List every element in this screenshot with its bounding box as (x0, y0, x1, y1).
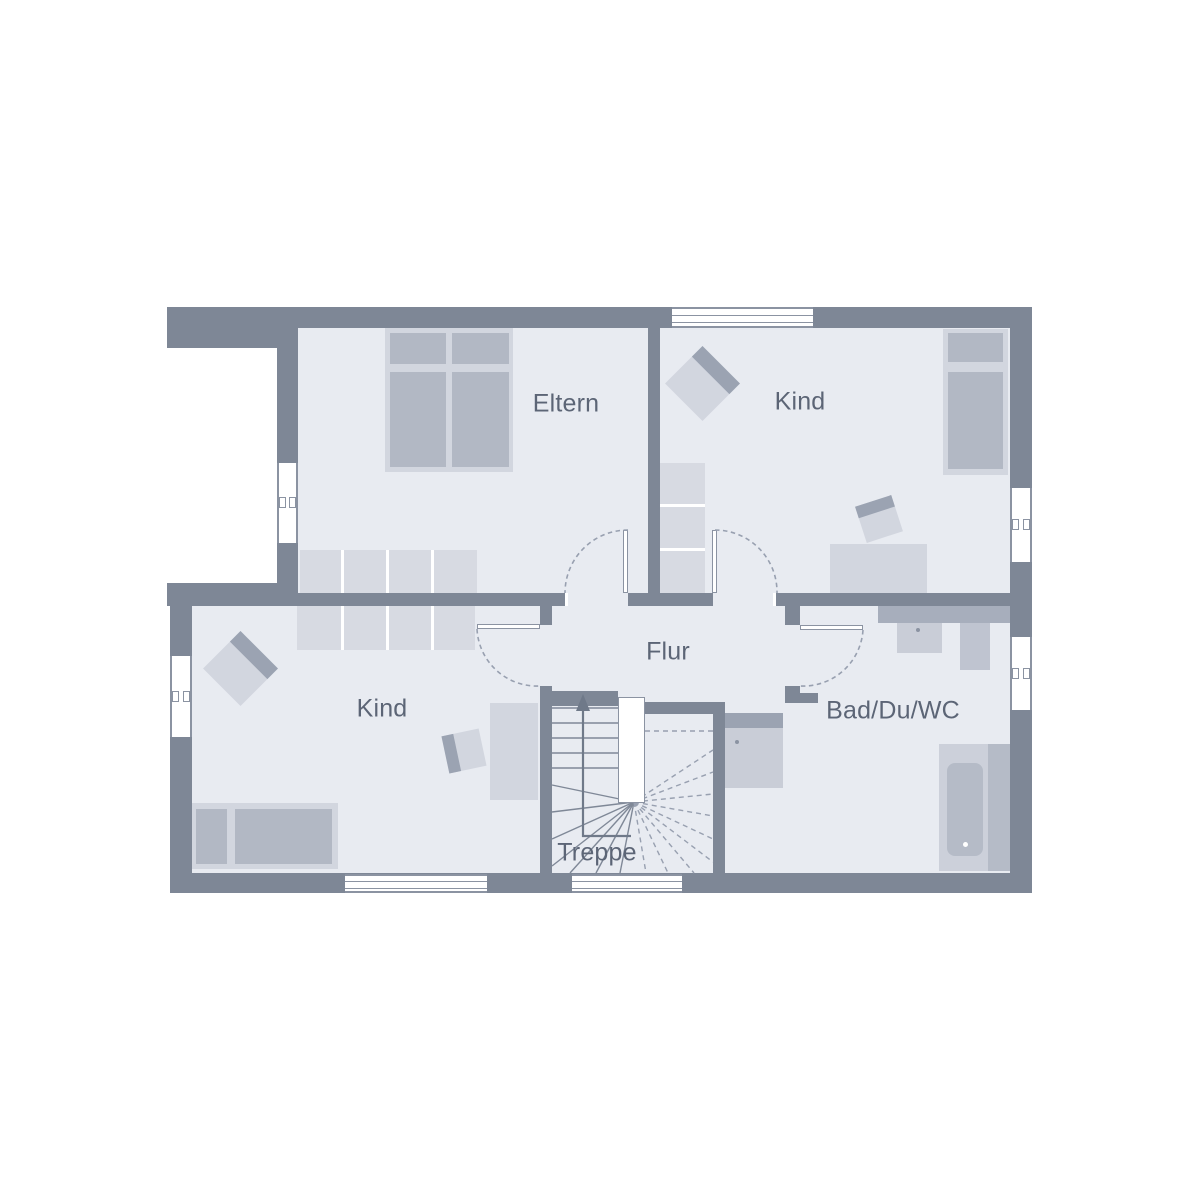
washbasin (897, 623, 942, 653)
floor-plan: Eltern Kind Kind Flur Bad/Du/WC Treppe (0, 0, 1200, 1200)
door-jamb (565, 593, 568, 606)
wall-left-lower (170, 737, 192, 893)
room-label-eltern: Eltern (533, 390, 600, 419)
desk (830, 544, 927, 593)
door-leaf-kind-bottom (477, 624, 540, 629)
door-jamb (773, 593, 776, 606)
window-top (672, 307, 813, 328)
bed-mattress (948, 372, 1003, 469)
wall-center-cap (628, 593, 713, 606)
wall-top-left-thick (167, 328, 278, 348)
double-bed (385, 328, 513, 472)
room-label-kind-bottom: Kind (357, 695, 408, 724)
desk-chair (441, 728, 486, 773)
room-label-flur: Flur (646, 638, 690, 667)
wall-step (167, 583, 298, 606)
bed-pillow (452, 333, 509, 364)
window-right-lower (1010, 637, 1032, 710)
dresser-row (300, 550, 477, 593)
bed-mattress (235, 809, 332, 864)
single-bed (943, 329, 1008, 475)
wall-door-stub-right-lower (785, 686, 800, 703)
window-left-lower (170, 656, 192, 737)
single-bed (191, 803, 338, 869)
wall-stair-top-a (552, 691, 618, 706)
shower (725, 713, 783, 788)
wall-room-divider (648, 328, 660, 593)
wall-right (1010, 307, 1032, 893)
bed-mattress (390, 372, 446, 467)
wall-left-upper (277, 307, 298, 463)
bed-mattress (452, 372, 509, 467)
wall-stair-top-b (645, 702, 725, 714)
window-left-upper (277, 463, 298, 543)
bathtub (939, 744, 1010, 871)
wall-door-stub-right (785, 605, 800, 625)
window-bottom-kind (345, 874, 487, 893)
bed-pillow (948, 333, 1003, 362)
wall-stair-right (713, 714, 725, 873)
toilet (960, 623, 990, 670)
door-leaf-bad (800, 625, 863, 630)
wall-flur-top-right (776, 593, 1010, 606)
room-label-bad: Bad/Du/WC (826, 697, 960, 726)
window-right-upper (1010, 488, 1032, 562)
wall-door-stub-right-foot (800, 693, 818, 703)
door-leaf-eltern (623, 530, 628, 593)
wall-left-lower (170, 606, 192, 656)
room-label-treppe: Treppe (557, 839, 636, 868)
bed-pillow (390, 333, 446, 364)
stair-newel-wall (618, 697, 645, 803)
window-bottom-treppe (572, 874, 682, 893)
desk (490, 703, 538, 800)
shelf-unit (660, 463, 705, 593)
bed-pillow (196, 809, 227, 864)
wall-flur-top-left (298, 593, 565, 606)
room-label-kind-top: Kind (775, 388, 826, 417)
vanity-counter (878, 606, 1010, 623)
wall-stair-left (540, 686, 552, 873)
wardrobe-row (297, 606, 475, 650)
wall-door-stub-left (540, 605, 552, 625)
door-leaf-kind-top (712, 530, 717, 593)
